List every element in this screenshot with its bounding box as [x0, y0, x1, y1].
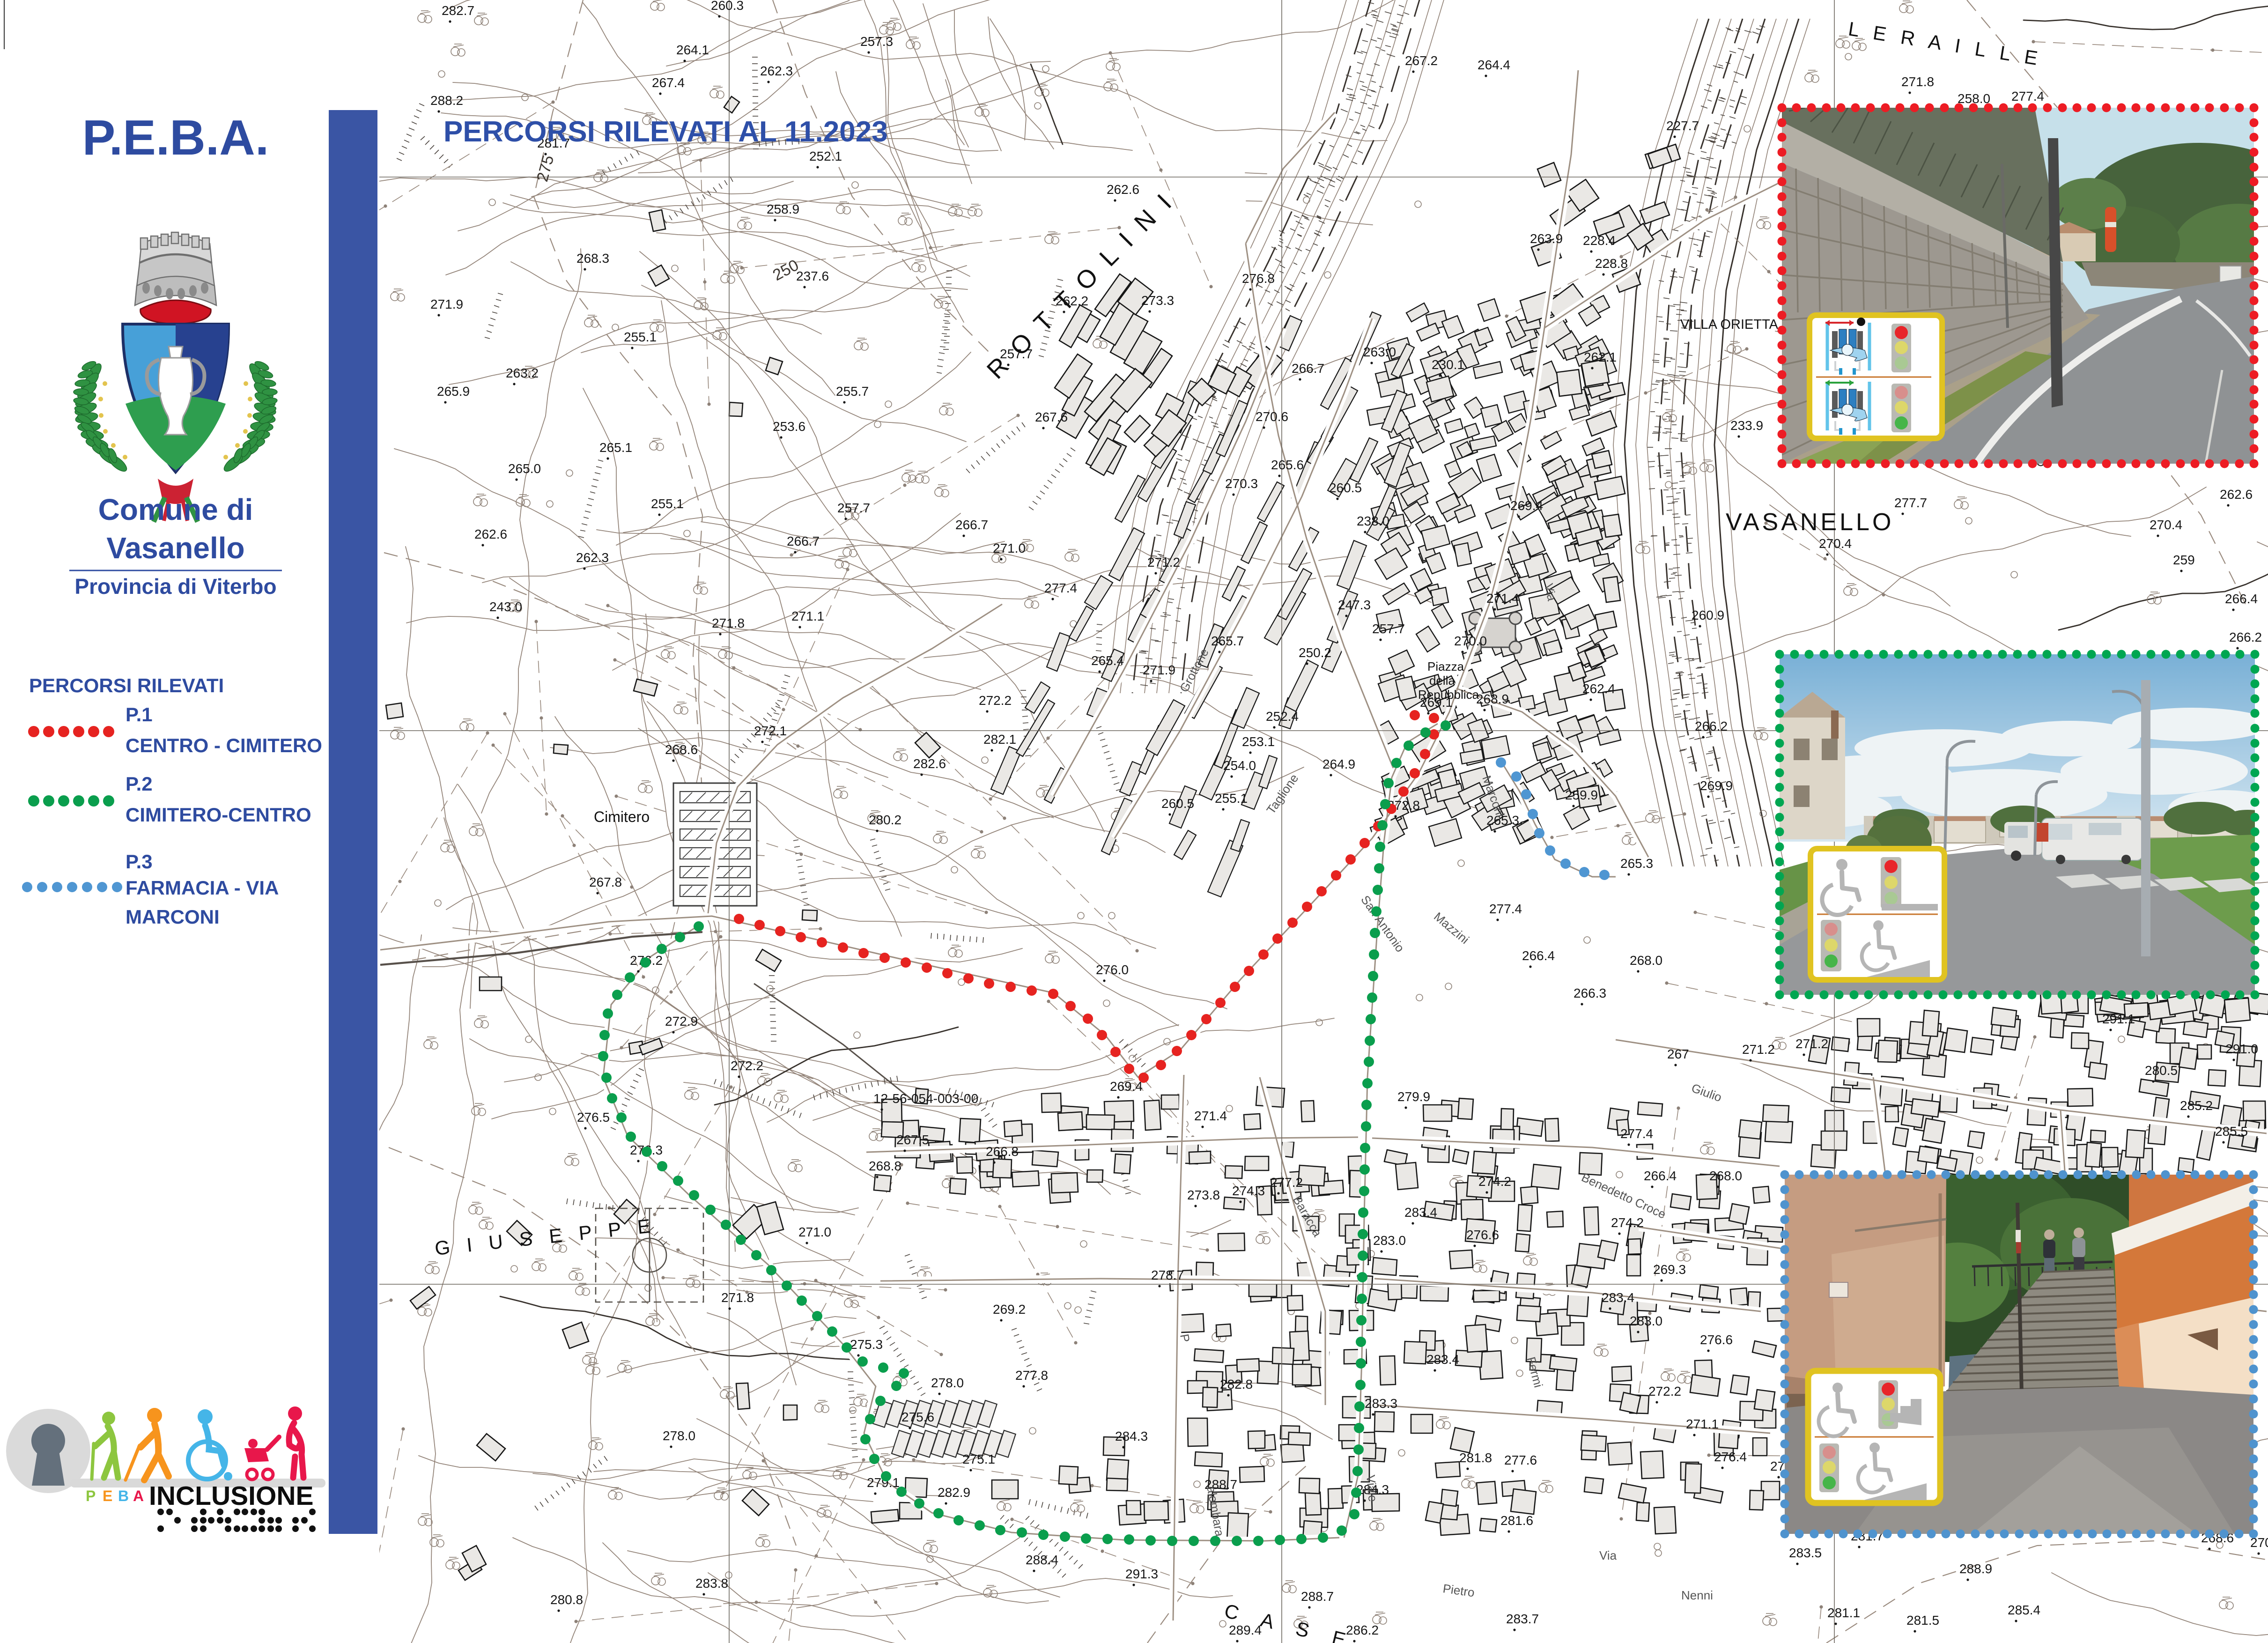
svg-text:230.1: 230.1 — [1432, 357, 1464, 372]
svg-text:VASANELLO: VASANELLO — [1726, 509, 1894, 536]
svg-text:227.7: 227.7 — [1666, 118, 1699, 133]
svg-text:PERCORSI RILEVATI AL 11.2023: PERCORSI RILEVATI AL 11.2023 — [443, 116, 888, 148]
svg-text:288.7: 288.7 — [1301, 1589, 1334, 1604]
svg-text:271.2: 271.2 — [1147, 555, 1180, 570]
svg-text:260.5: 260.5 — [1329, 481, 1362, 495]
svg-text:Viale: Viale — [1364, 1474, 1380, 1502]
svg-text:280.2: 280.2 — [869, 813, 901, 827]
svg-text:268.8: 268.8 — [869, 1159, 901, 1173]
svg-text:252.1: 252.1 — [809, 149, 842, 163]
svg-text:271.8: 271.8 — [712, 616, 745, 630]
svg-text:277.4: 277.4 — [1489, 902, 1522, 916]
svg-text:266.7: 266.7 — [1292, 361, 1324, 376]
svg-text:283.7: 283.7 — [1506, 1612, 1539, 1626]
svg-text:12-56-054-003-00: 12-56-054-003-00 — [873, 1091, 978, 1106]
svg-text:285.5: 285.5 — [2215, 1124, 2248, 1139]
svg-text:267.4: 267.4 — [652, 75, 685, 90]
svg-text:269.2: 269.2 — [993, 1302, 1026, 1317]
svg-text:266.7: 266.7 — [787, 534, 820, 548]
svg-text:262.4: 262.4 — [1582, 681, 1615, 696]
svg-text:275.1: 275.1 — [962, 1452, 995, 1466]
svg-text:MARCONI: MARCONI — [126, 906, 220, 928]
svg-text:253.1: 253.1 — [1242, 734, 1275, 749]
svg-text:271.9: 271.9 — [1143, 663, 1175, 677]
svg-text:269.4: 269.4 — [1110, 1079, 1143, 1094]
svg-text:276.6: 276.6 — [1466, 1228, 1499, 1242]
svg-text:255.1: 255.1 — [1215, 791, 1248, 806]
svg-text:VILLA ORIETTA: VILLA ORIETTA — [1680, 317, 1779, 332]
svg-text:283.4: 283.4 — [1404, 1205, 1437, 1220]
svg-text:271.4: 271.4 — [1194, 1109, 1227, 1123]
svg-text:263.0: 263.0 — [1363, 345, 1396, 359]
svg-text:271.2: 271.2 — [1795, 1036, 1828, 1051]
svg-text:266.4: 266.4 — [1644, 1169, 1677, 1183]
svg-text:P.3: P.3 — [126, 851, 153, 873]
svg-text:270.4: 270.4 — [1819, 536, 1852, 551]
svg-text:279.9: 279.9 — [1397, 1089, 1430, 1104]
svg-text:268.9: 268.9 — [1476, 692, 1509, 706]
svg-text:Via: Via — [1599, 1548, 1617, 1562]
svg-text:277.7: 277.7 — [1894, 496, 1927, 510]
svg-text:283.4: 283.4 — [1426, 1352, 1459, 1367]
svg-text:247.3: 247.3 — [1338, 598, 1371, 612]
svg-text:271.0: 271.0 — [798, 1225, 831, 1239]
svg-text:271.0: 271.0 — [993, 541, 1026, 555]
svg-text:Cimitero: Cimitero — [594, 808, 650, 825]
svg-text:P.1: P.1 — [126, 703, 153, 725]
svg-text:260.5: 260.5 — [1161, 796, 1194, 811]
svg-text:276.0: 276.0 — [1096, 962, 1129, 977]
svg-text:INCLUSIONE: INCLUSIONE — [149, 1481, 314, 1511]
svg-text:281.8: 281.8 — [1459, 1451, 1492, 1465]
svg-text:263.2: 263.2 — [506, 366, 539, 380]
svg-text:252.4: 252.4 — [1266, 709, 1299, 724]
svg-text:233.9: 233.9 — [1730, 418, 1763, 433]
svg-text:272.2: 272.2 — [979, 693, 1012, 708]
svg-text:288.4: 288.4 — [1026, 1553, 1058, 1567]
svg-text:266.8: 266.8 — [986, 1144, 1019, 1159]
svg-text:266.2: 266.2 — [2229, 630, 2262, 644]
svg-text:Vasanello: Vasanello — [106, 531, 244, 565]
svg-text:271.9: 271.9 — [430, 297, 463, 311]
svg-text:262.1: 262.1 — [1584, 350, 1617, 364]
svg-text:262.6: 262.6 — [2220, 487, 2253, 502]
svg-text:Repubblica: Repubblica — [1418, 688, 1479, 702]
svg-text:278.0: 278.0 — [931, 1376, 964, 1390]
svg-text:265.0: 265.0 — [508, 461, 541, 476]
svg-text:271.1: 271.1 — [791, 609, 824, 623]
svg-text:276.6: 276.6 — [1700, 1332, 1733, 1347]
svg-text:272.9: 272.9 — [665, 1014, 698, 1029]
svg-text:259.9: 259.9 — [1565, 788, 1598, 802]
svg-text:255.1: 255.1 — [651, 496, 684, 511]
svg-text:274.2: 274.2 — [1611, 1215, 1644, 1230]
svg-text:262.6: 262.6 — [474, 527, 507, 541]
svg-text:270.6: 270.6 — [1256, 409, 1288, 424]
svg-text:274.2: 274.2 — [1478, 1174, 1511, 1189]
svg-text:266.4: 266.4 — [1522, 948, 1555, 963]
svg-text:277.8: 277.8 — [1015, 1368, 1048, 1383]
svg-text:A: A — [133, 1488, 144, 1504]
svg-text:268.0: 268.0 — [1630, 953, 1662, 968]
svg-text:271.8: 271.8 — [1901, 74, 1934, 89]
svg-text:271.2: 271.2 — [1742, 1042, 1775, 1057]
svg-text:263.9: 263.9 — [1530, 231, 1563, 246]
svg-text:288.2: 288.2 — [430, 93, 463, 108]
svg-text:266.3: 266.3 — [1574, 986, 1606, 1000]
svg-text:253.6: 253.6 — [773, 419, 805, 434]
svg-text:281.5: 281.5 — [1906, 1613, 1939, 1628]
svg-text:265.6: 265.6 — [1271, 458, 1304, 472]
svg-text:265.4: 265.4 — [1091, 653, 1124, 668]
svg-text:271.1: 271.1 — [1686, 1417, 1719, 1431]
svg-text:283.5: 283.5 — [1789, 1546, 1822, 1560]
svg-text:260.3: 260.3 — [711, 0, 744, 13]
svg-text:CENTRO - CIMITERO: CENTRO - CIMITERO — [126, 734, 322, 756]
svg-text:277.4: 277.4 — [1044, 581, 1077, 595]
svg-text:Nenni: Nenni — [1681, 1588, 1713, 1602]
svg-text:Comune di: Comune di — [98, 493, 253, 526]
svg-text:283.0: 283.0 — [1630, 1314, 1662, 1328]
svg-text:265.3: 265.3 — [1620, 856, 1653, 871]
svg-text:288.9: 288.9 — [1959, 1562, 1992, 1576]
svg-text:266.4: 266.4 — [2225, 592, 2258, 606]
svg-text:243.0: 243.0 — [489, 599, 522, 614]
svg-text:Provincia di Viterbo: Provincia di Viterbo — [74, 574, 276, 599]
svg-text:269.9: 269.9 — [1700, 778, 1733, 793]
svg-text:264.9: 264.9 — [1322, 757, 1355, 771]
svg-text:275.6: 275.6 — [901, 1410, 934, 1424]
svg-text:273.8: 273.8 — [1187, 1188, 1220, 1202]
svg-text:267.2: 267.2 — [1405, 53, 1438, 68]
svg-text:268.3: 268.3 — [576, 251, 609, 266]
svg-text:262.3: 262.3 — [576, 550, 609, 565]
svg-text:266.2: 266.2 — [1695, 719, 1728, 733]
svg-text:285.2: 285.2 — [2180, 1098, 2213, 1113]
svg-text:270.4: 270.4 — [2150, 518, 2182, 532]
svg-text:278.0: 278.0 — [663, 1428, 695, 1443]
svg-text:268.0: 268.0 — [1709, 1169, 1742, 1183]
svg-text:259: 259 — [2173, 553, 2195, 567]
svg-text:276.4: 276.4 — [1714, 1450, 1747, 1464]
svg-text:283.4: 283.4 — [1602, 1290, 1634, 1305]
svg-text:269.4: 269.4 — [1510, 498, 1543, 513]
svg-text:277.4: 277.4 — [1620, 1126, 1653, 1141]
svg-text:262.3: 262.3 — [760, 64, 793, 78]
svg-text:271.8: 271.8 — [721, 1290, 754, 1305]
svg-text:B: B — [118, 1488, 129, 1504]
svg-text:283.3: 283.3 — [1365, 1396, 1397, 1411]
svg-text:278.7: 278.7 — [1151, 1268, 1184, 1282]
svg-text:282.6: 282.6 — [913, 756, 946, 771]
svg-text:273.3: 273.3 — [1141, 293, 1174, 308]
svg-text:264.1: 264.1 — [676, 43, 709, 57]
svg-text:291.1: 291.1 — [2102, 1012, 2135, 1026]
svg-text:269.3: 269.3 — [1653, 1262, 1686, 1277]
svg-text:267.8: 267.8 — [589, 875, 622, 889]
svg-text:282.1: 282.1 — [983, 732, 1016, 747]
svg-text:277.6: 277.6 — [1504, 1453, 1537, 1467]
svg-text:P.E.B.A.: P.E.B.A. — [82, 110, 269, 165]
svg-text:276.5: 276.5 — [577, 1110, 610, 1125]
svg-text:270.0: 270.0 — [1454, 634, 1487, 648]
svg-text:258.9: 258.9 — [767, 202, 799, 216]
svg-text:E: E — [103, 1488, 112, 1504]
svg-text:228.4: 228.4 — [1583, 233, 1616, 248]
svg-text:266.7: 266.7 — [955, 518, 988, 532]
svg-text:275.3: 275.3 — [850, 1337, 883, 1352]
svg-text:280.8: 280.8 — [550, 1592, 583, 1607]
svg-text:265.9: 265.9 — [437, 384, 470, 399]
svg-text:Piazza: Piazza — [1427, 659, 1464, 673]
svg-text:274.3: 274.3 — [1232, 1184, 1265, 1198]
svg-text:291.0: 291.0 — [2225, 1042, 2258, 1056]
svg-text:P: P — [86, 1488, 96, 1504]
svg-text:283.8: 283.8 — [695, 1576, 728, 1591]
svg-text:238.0: 238.0 — [1357, 514, 1389, 528]
svg-text:270.3: 270.3 — [1225, 476, 1258, 491]
svg-text:255.1: 255.1 — [624, 330, 657, 344]
svg-text:283.0: 283.0 — [1373, 1233, 1406, 1248]
svg-text:257.7: 257.7 — [837, 501, 870, 515]
svg-text:282.9: 282.9 — [938, 1485, 970, 1500]
svg-text:267.6: 267.6 — [1035, 410, 1068, 424]
svg-text:291.3: 291.3 — [1125, 1567, 1158, 1581]
svg-text:CIMITERO-CENTRO: CIMITERO-CENTRO — [126, 804, 311, 826]
svg-text:P.2: P.2 — [126, 773, 153, 795]
svg-text:276.8: 276.8 — [1242, 271, 1275, 286]
svg-text:255.7: 255.7 — [836, 384, 869, 399]
svg-text:268.6: 268.6 — [665, 742, 698, 757]
svg-text:285.4: 285.4 — [2008, 1603, 2040, 1617]
svg-text:267.5: 267.5 — [896, 1132, 929, 1147]
svg-text:PERCORSI RILEVATI: PERCORSI RILEVATI — [29, 674, 224, 696]
svg-text:281.1: 281.1 — [1827, 1606, 1860, 1620]
svg-text:267: 267 — [1667, 1047, 1689, 1061]
svg-text:254.0: 254.0 — [1223, 758, 1256, 773]
svg-text:280.5: 280.5 — [2145, 1063, 2178, 1078]
svg-text:284.3: 284.3 — [1115, 1429, 1148, 1443]
svg-text:257.7: 257.7 — [1372, 622, 1405, 636]
svg-text:228.8: 228.8 — [1595, 256, 1628, 271]
svg-text:257.3: 257.3 — [860, 34, 893, 49]
svg-text:FARMACIA - VIA: FARMACIA - VIA — [126, 877, 279, 899]
svg-text:282.8: 282.8 — [1220, 1377, 1253, 1391]
svg-text:264.4: 264.4 — [1478, 58, 1510, 72]
svg-text:250.2: 250.2 — [1299, 645, 1331, 660]
svg-text:277.4: 277.4 — [2011, 89, 2044, 104]
svg-text:della: della — [1429, 673, 1455, 688]
svg-text:265.1: 265.1 — [599, 440, 632, 455]
svg-text:272.1: 272.1 — [754, 724, 787, 738]
svg-text:260.9: 260.9 — [1692, 608, 1724, 622]
svg-text:262.6: 262.6 — [1107, 182, 1139, 197]
svg-text:272.2: 272.2 — [1648, 1384, 1681, 1399]
svg-text:272.2: 272.2 — [731, 1058, 763, 1073]
svg-text:282.7: 282.7 — [442, 3, 474, 18]
svg-text:281.6: 281.6 — [1500, 1513, 1533, 1528]
svg-text:271.4: 271.4 — [1486, 591, 1519, 606]
svg-text:265.7: 265.7 — [1211, 634, 1244, 648]
svg-text:277.2: 277.2 — [1270, 1175, 1303, 1190]
